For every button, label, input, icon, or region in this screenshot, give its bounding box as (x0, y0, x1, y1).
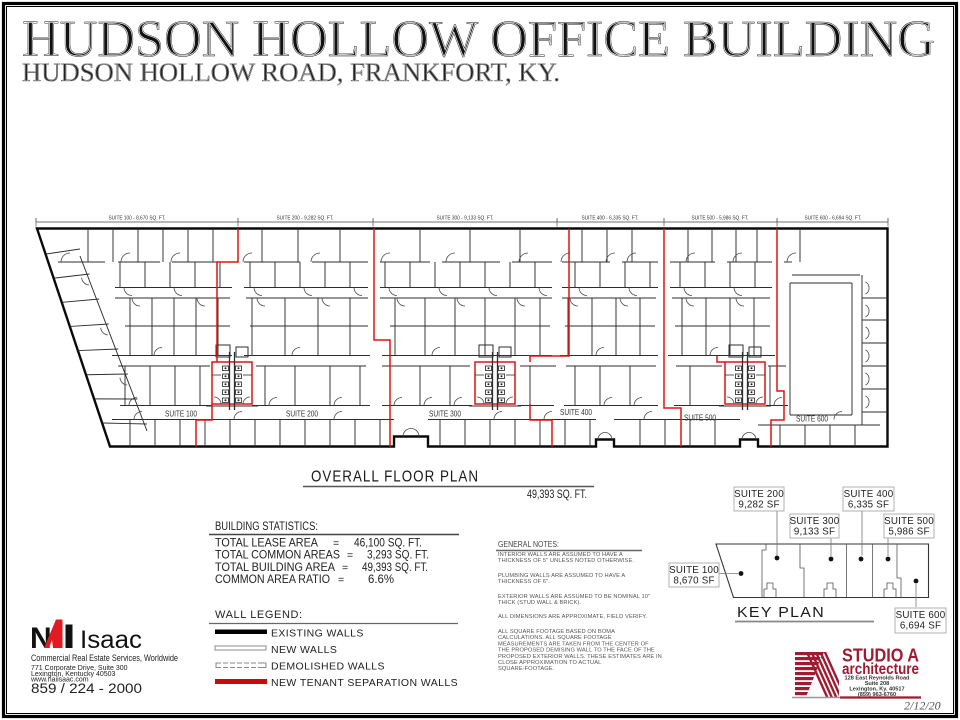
svg-text:9,282 SF: 9,282 SF (738, 500, 779, 511)
svg-text:SUITE 500 - 5,986 SQ. FT.: SUITE 500 - 5,986 SQ. FT. (692, 216, 749, 222)
svg-text:ALL DIMENSIONS ARE APPROXIMATE: ALL DIMENSIONS ARE APPROXIMATE, FIELD VE… (498, 614, 647, 620)
svg-text:PLUMBING WALLS ARE ASSUMED TO: PLUMBING WALLS ARE ASSUMED TO HAVE A (498, 573, 625, 579)
svg-text:GENERAL NOTES:: GENERAL NOTES: (498, 540, 559, 549)
svg-text:6,694 SF: 6,694 SF (900, 621, 941, 632)
svg-text:SUITE 200: SUITE 200 (734, 489, 784, 500)
svg-text:=: = (347, 550, 353, 562)
svg-text:PROPOSED EXTERIOR WALLS. THES: PROPOSED EXTERIOR WALLS. THESE ESTIMATES… (498, 654, 662, 660)
svg-text:SUITE 200: SUITE 200 (286, 410, 318, 419)
svg-text:6.6%: 6.6% (368, 572, 394, 586)
svg-text:5,986 SF: 5,986 SF (888, 527, 929, 538)
svg-text:KEY PLAN: KEY PLAN (737, 605, 825, 621)
svg-text:EXTERIOR WALLS ARE ASSUMED TO: EXTERIOR WALLS ARE ASSUMED TO BE NOMINAL… (498, 594, 650, 600)
svg-text:OVERALL FLOOR PLAN: OVERALL FLOOR PLAN (311, 469, 479, 486)
svg-text:THICKNESS OF 6".: THICKNESS OF 6". (498, 579, 550, 585)
svg-text:CLOSE APPROXIMATION TO ACTUAL: CLOSE APPROXIMATION TO ACTUAL (498, 660, 601, 666)
svg-text:COMMON AREA RATIO: COMMON AREA RATIO (215, 572, 330, 586)
svg-text:2/12/20: 2/12/20 (904, 699, 941, 713)
svg-text:INTERIOR WALLS ARE ASSUMED TO: INTERIOR WALLS ARE ASSUMED TO HAVE A (498, 552, 623, 558)
svg-text:EXISTING WALLS: EXISTING WALLS (271, 628, 364, 640)
svg-text:BUILDING STATISTICS:: BUILDING STATISTICS: (215, 521, 318, 533)
svg-text:SUITE 100 - 8,670 SQ. FT.: SUITE 100 - 8,670 SQ. FT. (109, 216, 166, 222)
svg-text:THICK (STUD WALL & BRICK).: THICK (STUD WALL & BRICK). (498, 600, 581, 606)
svg-text:SUITE 400: SUITE 400 (560, 408, 592, 417)
svg-text:SUITE 500: SUITE 500 (684, 414, 716, 423)
svg-text:=: = (342, 562, 348, 574)
svg-text:49,393 SQ. FT.: 49,393 SQ. FT. (527, 489, 587, 501)
svg-text:SUITE 500: SUITE 500 (884, 516, 934, 527)
svg-text:SUITE 300: SUITE 300 (429, 410, 461, 419)
svg-text:CALCULATIONS. ALL SQUARE FOOT: CALCULATIONS. ALL SQUARE FOOTAGE (498, 635, 612, 641)
svg-text:SUITE 600 - 6,694 SQ. FT.: SUITE 600 - 6,694 SQ. FT. (805, 216, 862, 222)
svg-text:SUITE 600: SUITE 600 (796, 415, 828, 424)
svg-text:NEW WALLS: NEW WALLS (271, 644, 337, 656)
svg-text:859 / 224 - 2000: 859 / 224 - 2000 (31, 680, 142, 696)
svg-text:SUITE 200 - 9,282 SQ. FT.: SUITE 200 - 9,282 SQ. FT. (277, 216, 334, 222)
svg-text:Isaac: Isaac (80, 626, 142, 654)
svg-text:SUITE 300: SUITE 300 (790, 516, 840, 527)
svg-text:8,670 SF: 8,670 SF (673, 576, 714, 587)
svg-text:THE PROPOSED DEMISING WALL TO: THE PROPOSED DEMISING WALL TO THE FACE O… (498, 648, 655, 654)
svg-text:DEMOLISHED WALLS: DEMOLISHED WALLS (271, 661, 385, 673)
svg-text:SUITE 100: SUITE 100 (165, 410, 197, 419)
svg-text:HUDSON HOLLOW ROAD, FRANKFORT,: HUDSON HOLLOW ROAD, FRANKFORT, KY. (22, 58, 560, 87)
svg-text:SUITE 300 - 9,133 SQ. FT.: SUITE 300 - 9,133 SQ. FT. (437, 216, 494, 222)
svg-text:SUITE 400 - 6,335 SQ. FT.: SUITE 400 - 6,335 SQ. FT. (582, 216, 639, 222)
svg-text:SUITE 600: SUITE 600 (896, 610, 946, 621)
svg-text:ALL SQUARE FOOTAGE BASED ON BO: ALL SQUARE FOOTAGE BASED ON BOMA (498, 629, 615, 635)
svg-text:WALL LEGEND:: WALL LEGEND: (215, 609, 303, 621)
svg-text:MEASUREMENTS ARE TAKEN FROM TH: MEASUREMENTS ARE TAKEN FROM THE CENTER O… (498, 641, 649, 647)
svg-text:Commercial Real Estate Service: Commercial Real Estate Services, Worldwi… (31, 653, 178, 663)
svg-text:=: = (338, 574, 344, 586)
svg-text:NEW TENANT SEPARATION WALLS: NEW TENANT SEPARATION WALLS (271, 677, 458, 689)
svg-text:6,335 SF: 6,335 SF (848, 500, 889, 511)
svg-text:THICKNESS OF 5" UNLESS NOTED O: THICKNESS OF 5" UNLESS NOTED OTHERWISE. (498, 558, 634, 564)
svg-text:9,133 SF: 9,133 SF (794, 527, 835, 538)
svg-text:SUITE 100: SUITE 100 (669, 565, 719, 576)
svg-text:SQUARE-FOOTAGE.: SQUARE-FOOTAGE. (498, 666, 555, 672)
svg-text:SUITE 400: SUITE 400 (844, 489, 894, 500)
